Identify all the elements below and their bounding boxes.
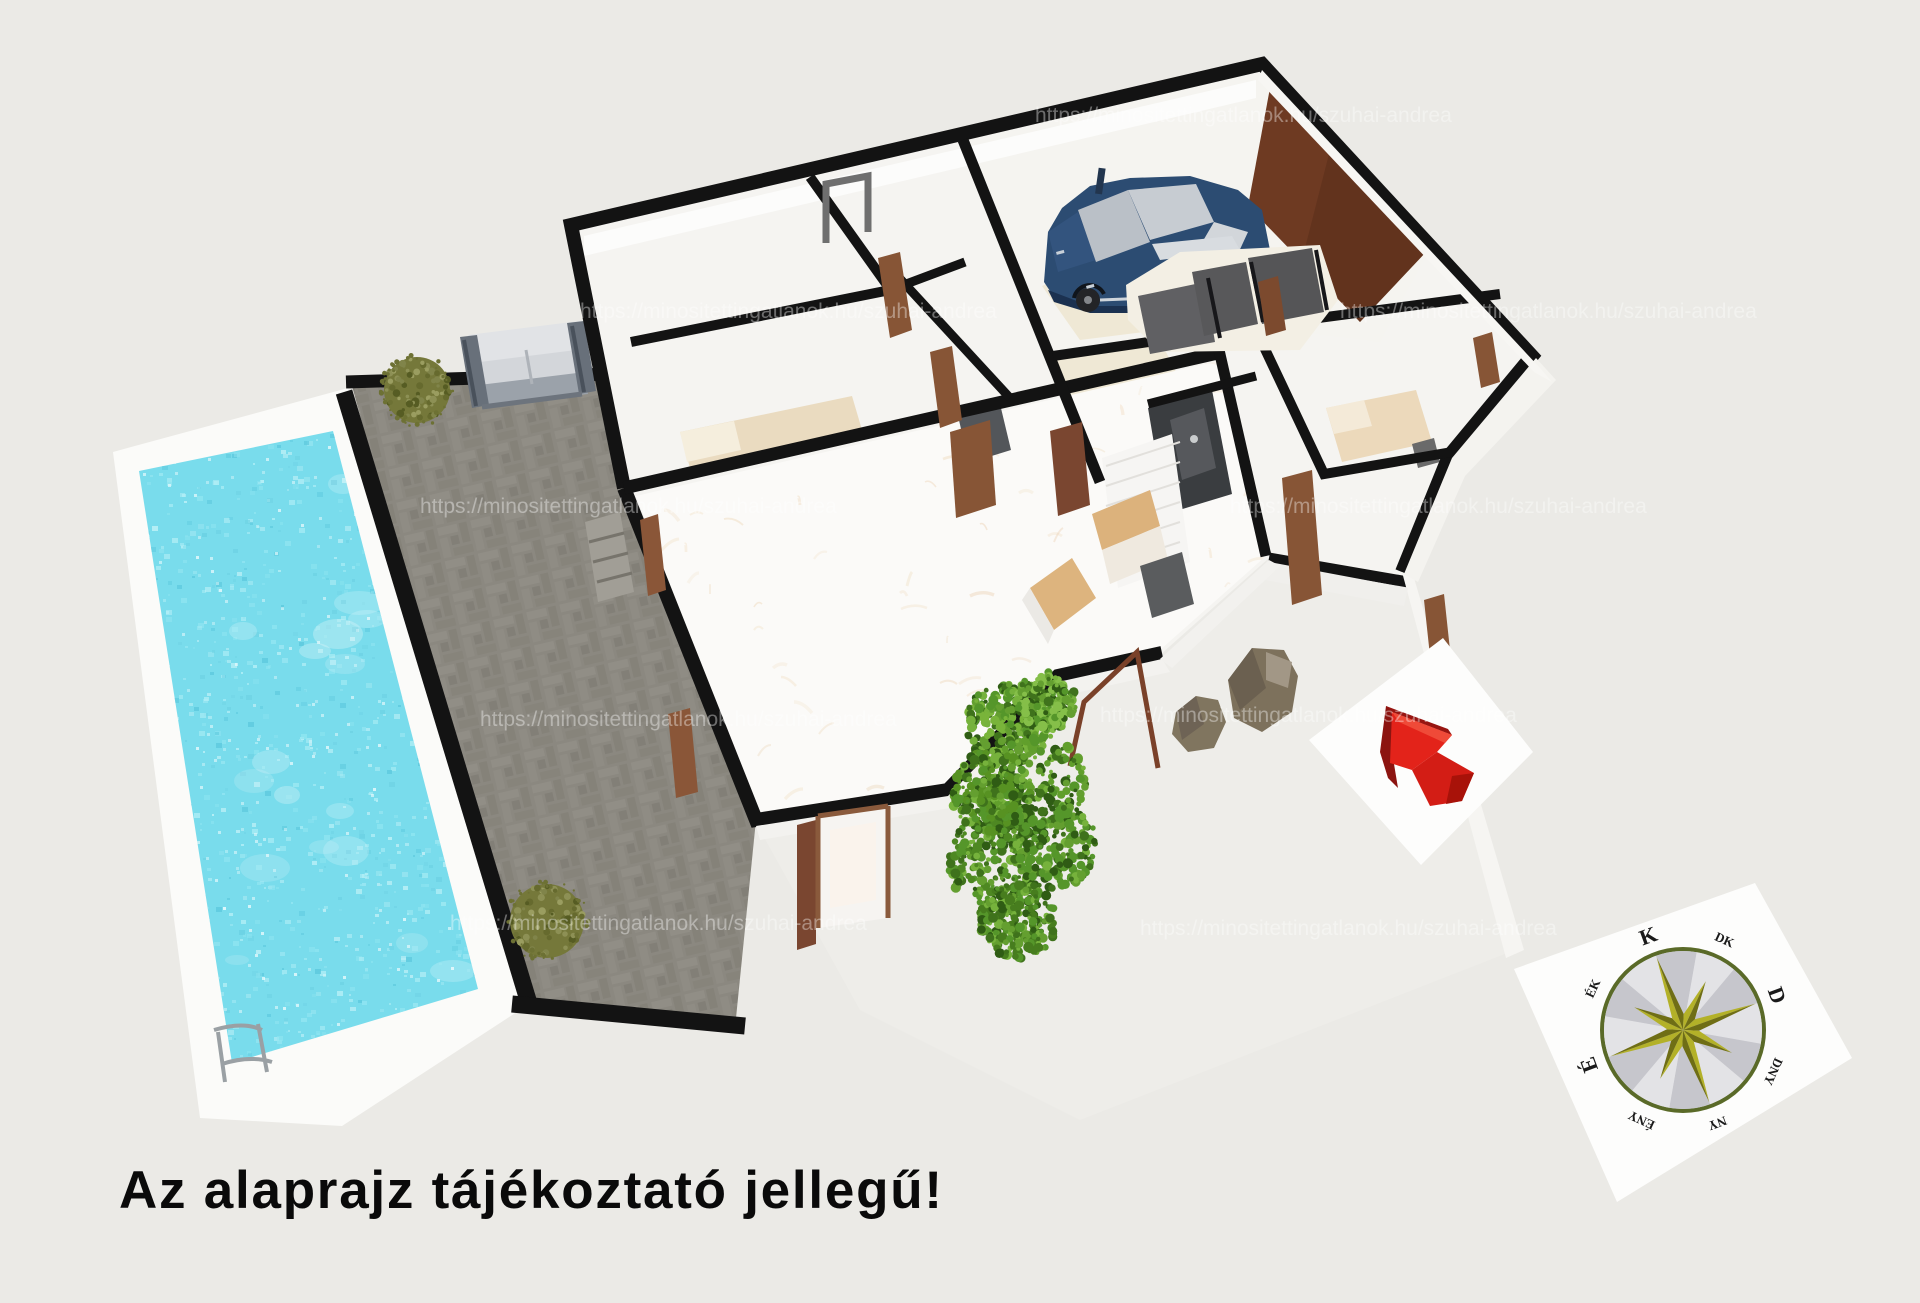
- svg-text:Az alaprajz tájékoztató jelleg: Az alaprajz tájékoztató jellegű!: [119, 1161, 942, 1220]
- svg-text:https://minositettingatlanok.h: https://minositettingatlanok.hu/szuhai-a…: [1340, 300, 1757, 323]
- svg-text:https://minositettingatlanok.h: https://minositettingatlanok.hu/szuhai-a…: [1230, 495, 1647, 518]
- svg-text:https://minositettingatlanok.h: https://minositettingatlanok.hu/szuhai-a…: [1035, 104, 1452, 127]
- svg-text:https://minositettingatlanok.h: https://minositettingatlanok.hu/szuhai-a…: [580, 300, 997, 323]
- svg-text:https://minositettingatlanok.h: https://minositettingatlanok.hu/szuhai-a…: [420, 495, 837, 518]
- svg-text:https://minositettingatlanok.h: https://minositettingatlanok.hu/szuhai-a…: [1140, 917, 1557, 940]
- svg-text:https://minositettingatlanok.h: https://minositettingatlanok.hu/szuhai-a…: [480, 708, 897, 731]
- svg-text:https://minositettingatlanok.h: https://minositettingatlanok.hu/szuhai-a…: [450, 912, 867, 935]
- svg-text:https://minositettingatlanok.h: https://minositettingatlanok.hu/szuhai-a…: [1100, 704, 1517, 727]
